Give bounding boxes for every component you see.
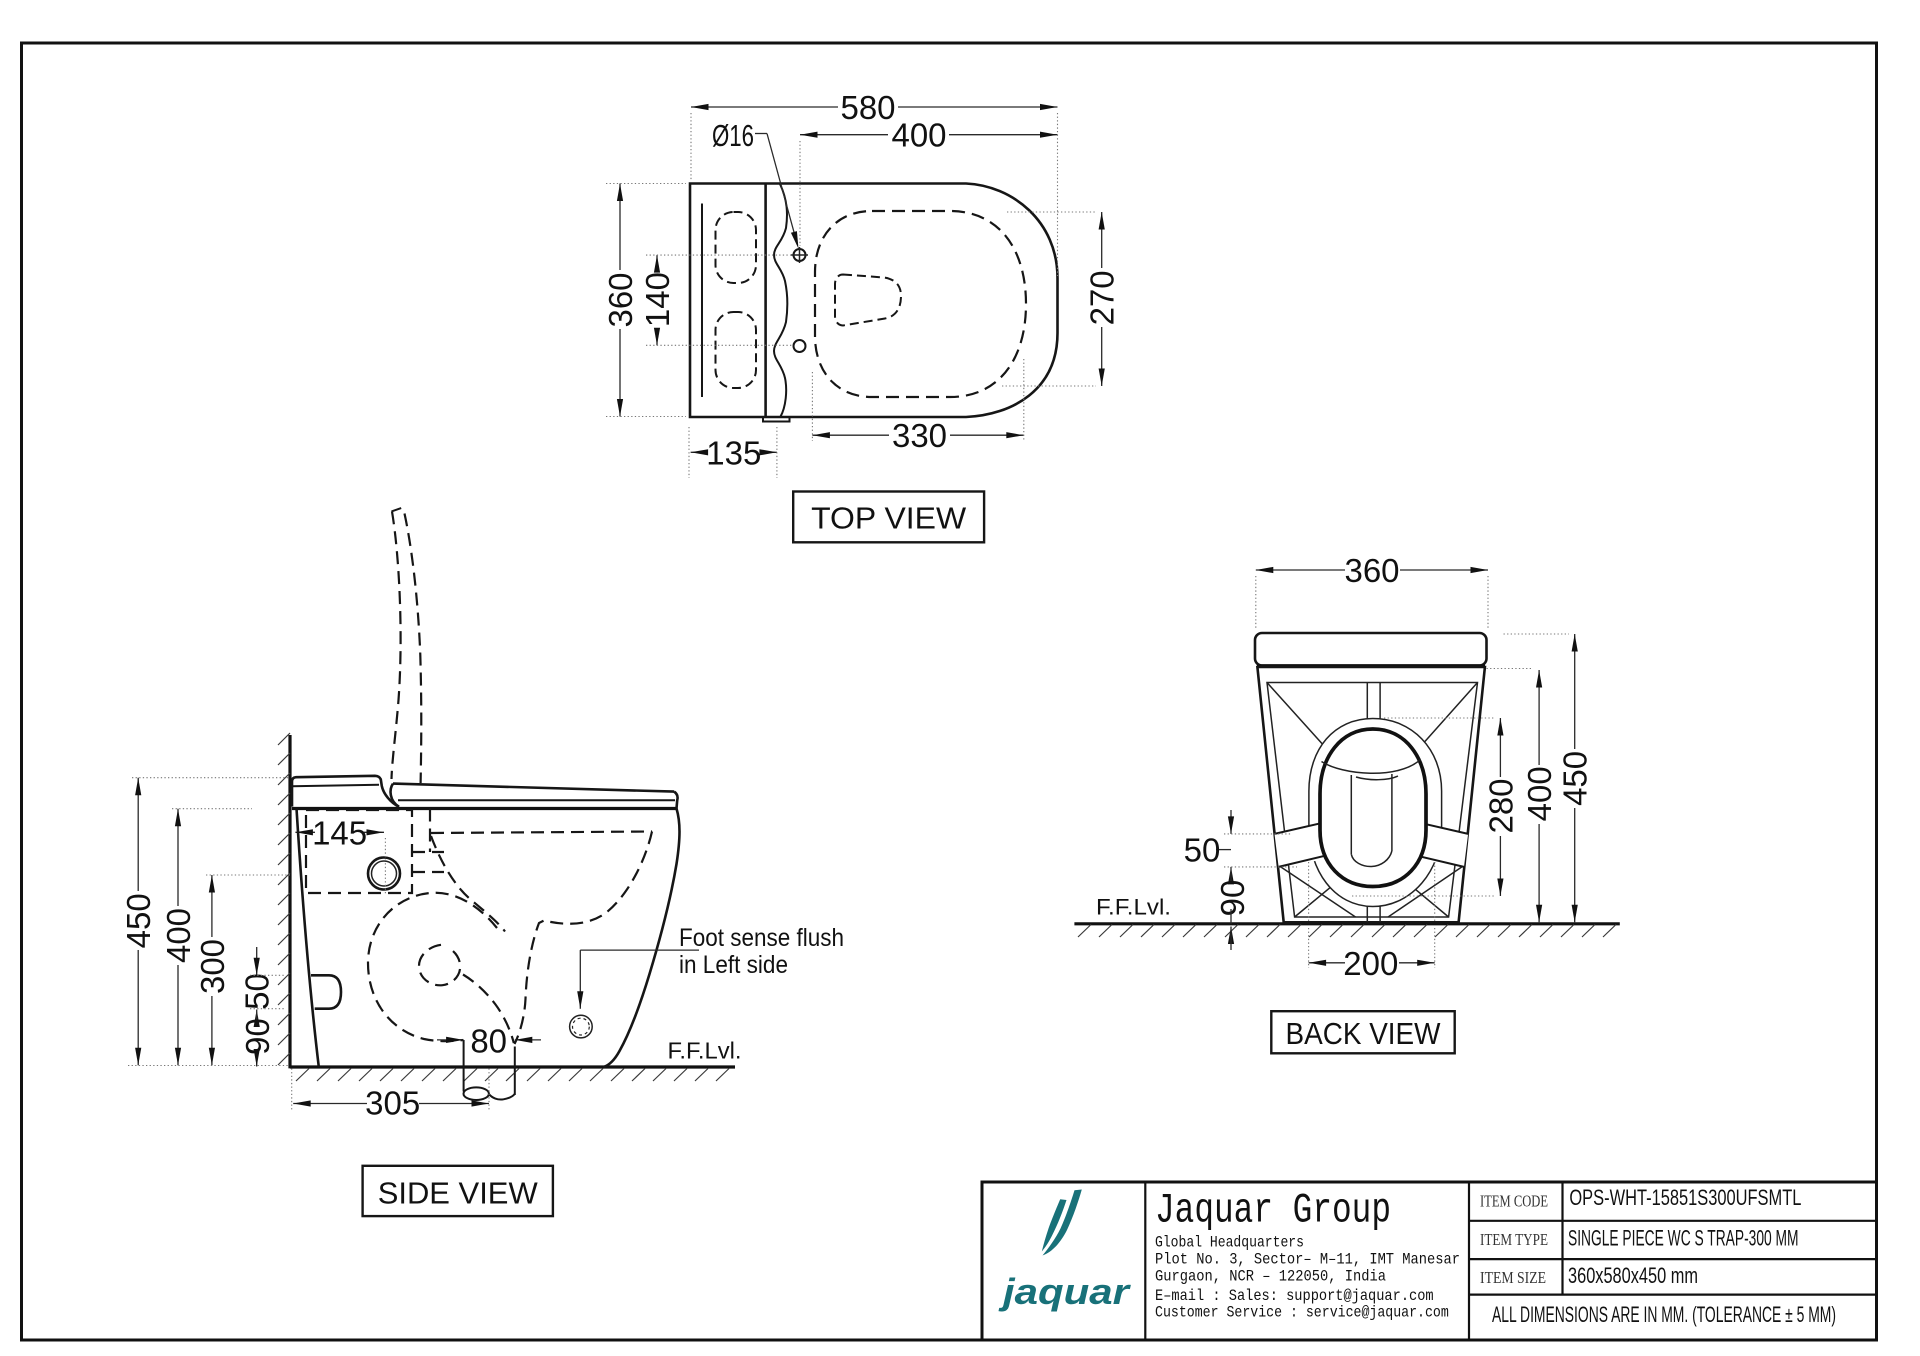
svg-text:135: 135 — [706, 434, 761, 471]
svg-text:F.F.Lvl.: F.F.Lvl. — [1096, 894, 1171, 919]
svg-text:90: 90 — [1214, 880, 1251, 917]
svg-text:305: 305 — [365, 1085, 420, 1122]
svg-text:400: 400 — [1521, 766, 1558, 821]
svg-text:200: 200 — [1343, 945, 1398, 982]
svg-text:140: 140 — [639, 272, 676, 327]
svg-text:50: 50 — [1184, 832, 1221, 869]
svg-text:145: 145 — [312, 814, 367, 851]
svg-text:BACK VIEW: BACK VIEW — [1286, 1016, 1442, 1051]
svg-text:Global Headquarters: Global Headquarters — [1155, 1233, 1304, 1251]
svg-text:ITEM TYPE: ITEM TYPE — [1480, 1230, 1548, 1249]
svg-text:Customer Service : service@jaq: Customer Service : service@jaquar.com — [1155, 1304, 1449, 1322]
svg-text:in Left side: in Left side — [679, 951, 788, 979]
svg-text:Foot sense flush: Foot sense flush — [679, 924, 844, 952]
svg-text:280: 280 — [1482, 778, 1519, 833]
svg-text:270: 270 — [1084, 270, 1121, 325]
svg-text:50: 50 — [239, 973, 276, 1010]
svg-text:SIDE VIEW: SIDE VIEW — [378, 1175, 539, 1210]
svg-text:F.F.Lvl.: F.F.Lvl. — [668, 1037, 742, 1063]
svg-text:450: 450 — [120, 893, 157, 948]
svg-text:E–mail : Sales: support@jaquar: E–mail : Sales: support@jaquar.com — [1155, 1287, 1434, 1305]
svg-text:SINGLE PIECE WC S TRAP-300 MM: SINGLE PIECE WC S TRAP-300 MM — [1568, 1225, 1799, 1250]
svg-text:ALL DIMENSIONS ARE IN MM. (TOL: ALL DIMENSIONS ARE IN MM. (TOLERANCE ± 5… — [1492, 1302, 1836, 1327]
svg-text:Gurgaon, NCR – 122050, India: Gurgaon, NCR – 122050, India — [1155, 1267, 1386, 1285]
svg-text:ITEM SIZE: ITEM SIZE — [1480, 1268, 1546, 1287]
svg-text:400: 400 — [160, 908, 197, 963]
svg-text:450: 450 — [1557, 751, 1594, 806]
svg-text:80: 80 — [470, 1023, 507, 1060]
svg-text:OPS-WHT-15851S300UFSMTL: OPS-WHT-15851S300UFSMTL — [1569, 1185, 1801, 1210]
svg-text:Ø16: Ø16 — [712, 118, 754, 153]
svg-text:360x580x450 mm: 360x580x450 mm — [1568, 1263, 1698, 1288]
svg-text:360: 360 — [1344, 552, 1399, 589]
svg-text:330: 330 — [892, 417, 947, 454]
svg-text:Plot No. 3, Sector– M–11, IMT: Plot No. 3, Sector– M–11, IMT Manesar — [1155, 1250, 1460, 1268]
svg-text:Jaquar Group: Jaquar Group — [1155, 1187, 1391, 1235]
svg-text:300: 300 — [194, 939, 231, 994]
svg-text:ITEM CODE: ITEM CODE — [1480, 1191, 1548, 1210]
svg-text:TOP VIEW: TOP VIEW — [811, 501, 967, 536]
svg-text:jaquar: jaquar — [998, 1271, 1131, 1312]
svg-text:400: 400 — [891, 117, 946, 154]
svg-text:580: 580 — [840, 89, 895, 126]
svg-text:360: 360 — [602, 272, 639, 327]
